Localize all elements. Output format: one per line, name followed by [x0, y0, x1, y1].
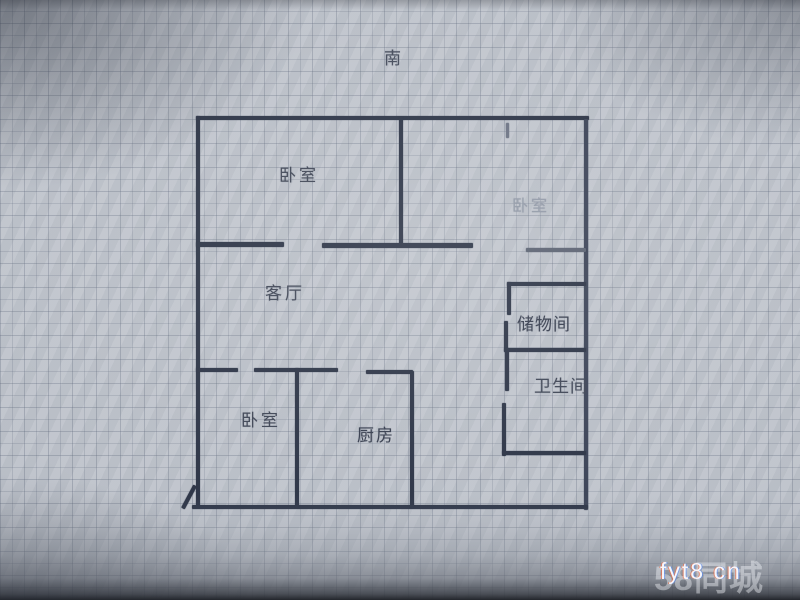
room-label-kitchen: 厨房 — [357, 427, 395, 446]
floorplan: 卧室卧室客厅储物间卫生间卧室厨房 — [0, 0, 800, 600]
wall — [507, 282, 511, 315]
wall — [295, 368, 299, 508]
wall — [507, 282, 586, 286]
wall — [399, 117, 403, 247]
watermark: 58同城 fyt8 cn — [648, 549, 798, 599]
room-label-bedroom-top-right: 卧室 — [512, 198, 550, 216]
wall — [502, 403, 506, 456]
compass-south-label: 南 — [384, 44, 402, 69]
room-label-bathroom: 卫生间 — [534, 378, 588, 397]
wall — [410, 371, 414, 508]
wall — [192, 505, 588, 509]
wall — [504, 348, 586, 352]
wall — [505, 348, 509, 391]
wall — [506, 123, 509, 138]
wall — [196, 116, 200, 508]
room-label-bedroom-bottom-left: 卧室 — [241, 412, 281, 431]
wall — [196, 368, 238, 372]
room-label-living-room: 客厅 — [265, 285, 305, 304]
wall — [196, 242, 284, 247]
room-label-bedroom-top-left: 卧室 — [279, 167, 319, 186]
room-label-storage-room: 储物间 — [517, 316, 571, 335]
watermark-text: fyt8 cn — [660, 558, 742, 585]
wall — [526, 248, 586, 252]
wall — [196, 116, 589, 120]
wall — [502, 451, 586, 455]
wall — [366, 370, 413, 374]
wall — [322, 243, 473, 248]
floorplan-photo: 卧室卧室客厅储物间卫生间卧室厨房 南 58同城 fyt8 cn — [0, 0, 800, 600]
